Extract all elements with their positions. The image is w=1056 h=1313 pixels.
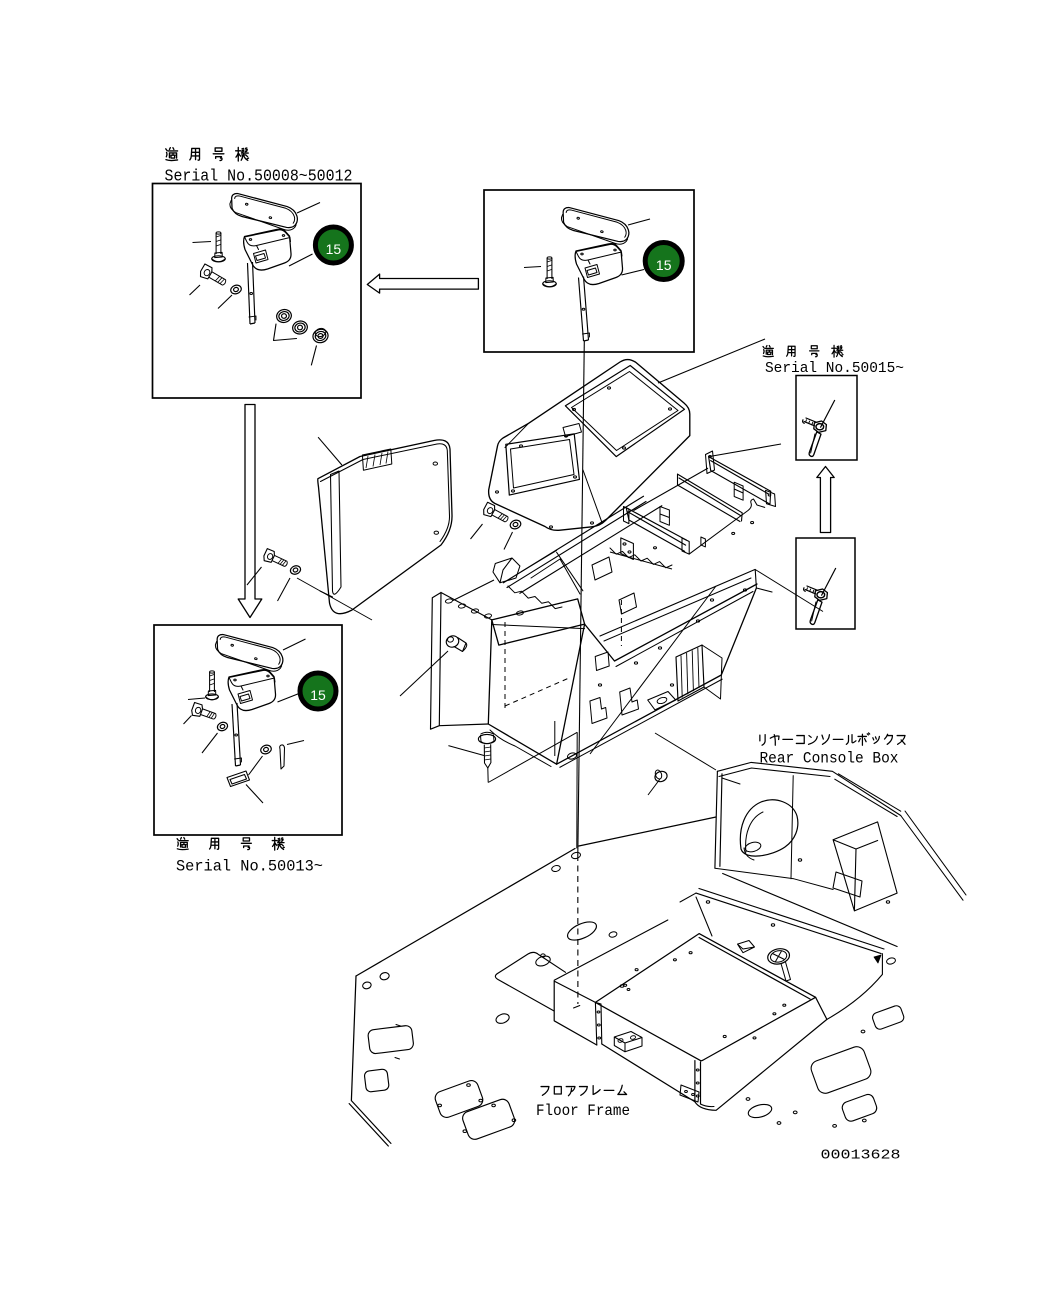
svg-text:Floor Frame: Floor Frame bbox=[536, 1102, 630, 1120]
svg-text:15: 15 bbox=[326, 241, 342, 257]
svg-text:Rear Console Box: Rear Console Box bbox=[760, 750, 899, 768]
svg-text:15: 15 bbox=[310, 687, 326, 703]
svg-text:Serial No.50015~: Serial No.50015~ bbox=[765, 359, 904, 377]
svg-text:00013628: 00013628 bbox=[821, 1149, 901, 1164]
svg-text:15: 15 bbox=[656, 257, 672, 273]
svg-text:Serial No.50013~: Serial No.50013~ bbox=[176, 858, 323, 876]
